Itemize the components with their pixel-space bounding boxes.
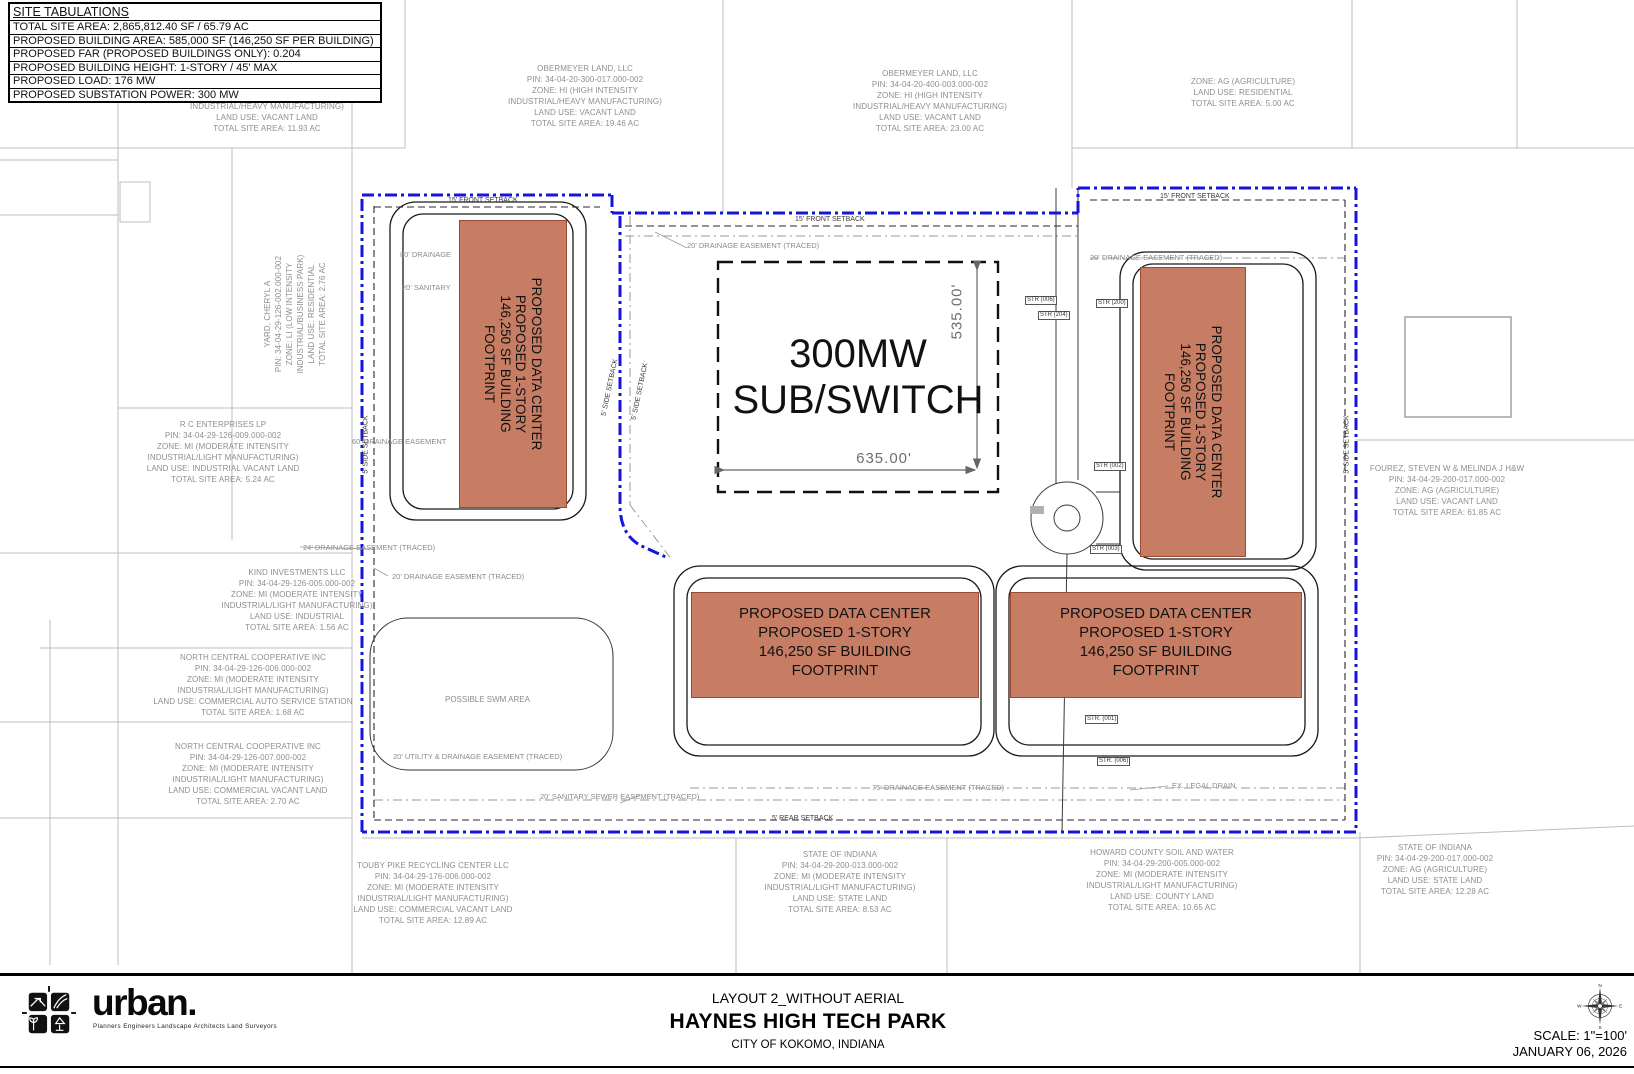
easement-label: 20' DRAINAGE EASEMENT (TRACED) xyxy=(687,241,819,250)
urban-logo-icon xyxy=(22,986,76,1040)
tabulation-row: PROPOSED BUILDING HEIGHT: 1-STORY / 45' … xyxy=(10,62,380,76)
easement-label: 20' UTILITY & DRAINAGE EASEMENT (TRACED) xyxy=(393,752,562,761)
building-label: PROPOSED DATA CENTER PROPOSED 1-STORY 14… xyxy=(1010,604,1302,680)
parcel-label: NORTH CENTRAL COOPERATIVE INC PIN: 34-04… xyxy=(103,652,403,718)
easement-label: 75' DRAINAGE EASEMENT (TRACED) xyxy=(872,783,1004,792)
structure-tag: STR (200) xyxy=(1096,299,1128,308)
tabulation-row: PROPOSED BUILDING AREA: 585,000 SF (146,… xyxy=(10,35,380,49)
easement-label: 24' DRAINAGE EASEMENT (TRACED) xyxy=(303,543,435,552)
parcel-label: KIND INVESTMENTS LLC PIN: 34-04-29-126-0… xyxy=(167,567,427,633)
building-label: PROPOSED DATA CENTER PROPOSED 1-STORY 14… xyxy=(691,604,979,680)
parcel-label: INDUSTRIAL/HEAVY MANUFACTURING) LAND USE… xyxy=(137,101,397,134)
layout-title: LAYOUT 2_WITHOUT AERIAL xyxy=(508,990,1108,1006)
scale-note: SCALE: 1"=100' xyxy=(1513,1028,1627,1044)
site-tabulations-title: SITE TABULATIONS xyxy=(10,4,380,21)
parcel-label: HOWARD COUNTY SOIL AND WATER PIN: 34-04-… xyxy=(1027,847,1297,913)
dimension-height: 535.00' xyxy=(949,272,966,352)
structure-tag: STR (204) xyxy=(1038,311,1070,320)
parcel-label: YARD, CHERYL A PIN: 34-04-29-126-002.000… xyxy=(262,229,328,399)
easement-label: 20' SANITARY xyxy=(402,283,451,292)
swm-area-outline xyxy=(370,618,613,770)
parcel-label: OBERMEYER LAND, LLC PIN: 34-04-20-400-00… xyxy=(800,68,1060,134)
parcel-label: STATE OF INDIANA PIN: 34-04-29-200-017.0… xyxy=(1310,842,1560,897)
compass-rose-icon: N S E W xyxy=(1577,983,1623,1029)
substation-type: SUB/SWITCH xyxy=(732,377,983,423)
drain-label: EX. LEGAL DRAIN xyxy=(1172,781,1236,790)
tabulation-row: TOTAL SITE AREA: 2,865,812.40 SF / 65.79… xyxy=(10,21,380,35)
parcel-label: OBERMEYER LAND, LLC PIN: 34-04-20-300-01… xyxy=(455,63,715,129)
site-plan-sheet: SITE TABULATIONS TOTAL SITE AREA: 2,865,… xyxy=(0,0,1634,1074)
building-label: PROPOSED DATA CENTER PROPOSED 1-STORY 14… xyxy=(482,229,544,499)
easement-label: 20' SANITARY SEWER EASEMENT (TRACED) xyxy=(540,792,699,801)
easement-label: 20' DRAINAGE EASEMENT (TRACED) xyxy=(1090,253,1222,262)
tabulation-row: PROPOSED SUBSTATION POWER: 300 MW xyxy=(10,89,380,102)
tabulation-row: PROPOSED LOAD: 176 MW xyxy=(10,75,380,89)
road-lines xyxy=(1030,188,1120,832)
structure-tag: STR (002) xyxy=(1094,462,1126,471)
tabulation-row: PROPOSED FAR (PROPOSED BUILDINGS ONLY): … xyxy=(10,48,380,62)
svg-text:E: E xyxy=(1619,1004,1622,1009)
setback-label: 15' FRONT SETBACK xyxy=(448,196,518,205)
sheet-bottom-border xyxy=(0,1066,1634,1068)
project-location: CITY OF KOKOMO, INDIANA xyxy=(508,1039,1108,1051)
urban-logo: urban. Planners Engineers Landscape Arch… xyxy=(22,986,277,1040)
substation-power: 300MW xyxy=(789,331,927,377)
setback-label: 15' FRONT SETBACK xyxy=(795,215,865,224)
title-block-divider xyxy=(0,973,1634,976)
parcel-label: R C ENTERPRISES LP PIN: 34-04-29-126-009… xyxy=(93,419,353,485)
setback-label: 5' SIDE SETBACK xyxy=(1343,405,1352,485)
structure-tag: STR (003) xyxy=(1090,545,1122,554)
svg-text:W: W xyxy=(1577,1004,1582,1009)
project-title: HAYNES HIGH TECH PARK xyxy=(508,1010,1108,1034)
setback-label: 5' SIDE SETBACK xyxy=(362,405,371,485)
swm-area-label: POSSIBLE SWM AREA xyxy=(445,695,530,704)
parcel-label: STATE OF INDIANA PIN: 34-04-29-200-013.0… xyxy=(710,849,970,915)
building-label: PROPOSED DATA CENTER PROPOSED 1-STORY 14… xyxy=(1162,277,1224,547)
parcel-label: TOUBY PIKE RECYCLING CENTER LLC PIN: 34-… xyxy=(303,860,563,926)
setback-label: 5' REAR SETBACK xyxy=(772,814,833,823)
parcel-label: NORTH CENTRAL COOPERATIVE INC PIN: 34-04… xyxy=(118,741,378,807)
site-tabulations-table: SITE TABULATIONS TOTAL SITE AREA: 2,865,… xyxy=(8,2,382,103)
easement-label: 20' DRAINAGE EASEMENT (TRACED) xyxy=(392,572,524,581)
title-block-center: LAYOUT 2_WITHOUT AERIAL HAYNES HIGH TECH… xyxy=(508,990,1108,1051)
dimension-width: 635.00' xyxy=(844,450,924,467)
title-block-right: SCALE: 1"=100' JANUARY 06, 2026 xyxy=(1513,1028,1627,1060)
parcel-label: ZONE: AG (AGRICULTURE) LAND USE: RESIDEN… xyxy=(1123,76,1363,109)
structure-tag: STR. (001) xyxy=(1085,715,1118,724)
structure-tag: STR (006) xyxy=(1025,296,1057,305)
urban-logo-wordmark: urban. xyxy=(92,986,277,1020)
date-note: JANUARY 06, 2026 xyxy=(1513,1044,1627,1060)
svg-text:N: N xyxy=(1598,983,1601,988)
structure-tag: STR. (006) xyxy=(1097,757,1130,766)
setback-label: 15' FRONT SETBACK xyxy=(1160,192,1230,201)
easement-label: 80' DRAINAGE xyxy=(400,250,451,259)
urban-logo-tagline: Planners Engineers Landscape Architects … xyxy=(93,1023,277,1030)
